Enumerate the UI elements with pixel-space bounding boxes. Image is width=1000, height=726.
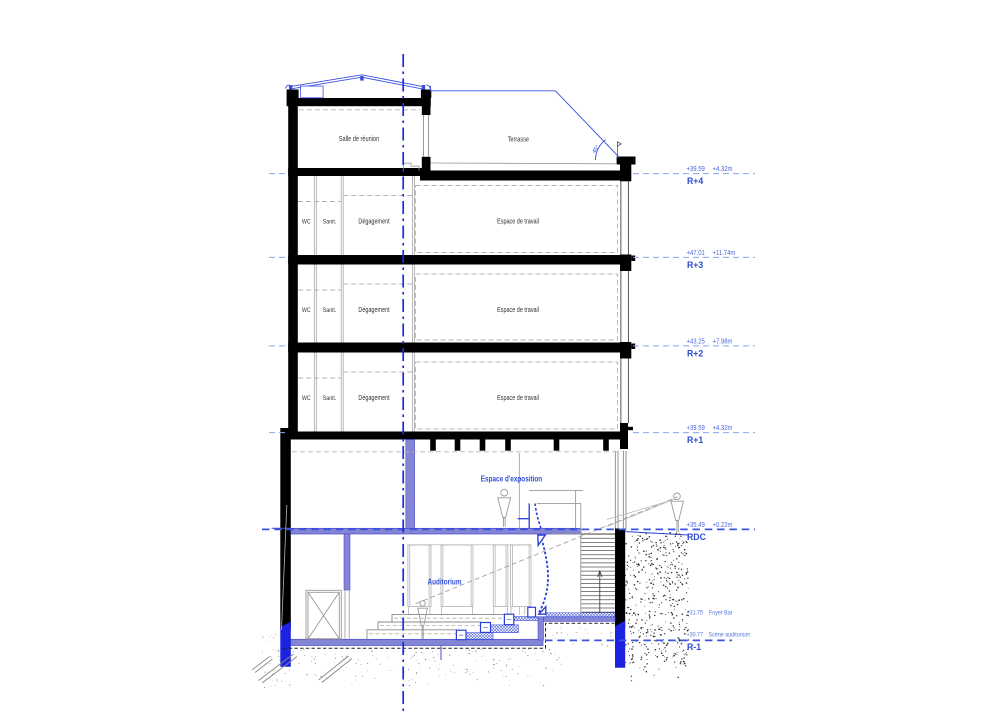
svg-text:RDC: RDC [687, 532, 706, 542]
svg-text:WC: WC [302, 219, 311, 226]
svg-text:Espace de travail: Espace de travail [497, 218, 539, 226]
svg-text:+43.25: +43.25 [687, 338, 706, 346]
svg-text:+4.32m: +4.32m [713, 166, 733, 174]
svg-text:+47.01: +47.01 [687, 250, 706, 258]
svg-text:+11.74m: +11.74m [713, 250, 736, 258]
svg-text:Dégagement: Dégagement [358, 218, 389, 226]
svg-text:+30.77: +30.77 [687, 632, 703, 638]
svg-text:Auditorium: Auditorium [427, 576, 461, 586]
svg-text:+31.75: +31.75 [687, 610, 703, 616]
svg-text:Espace de travail: Espace de travail [497, 394, 539, 402]
svg-text:Sanit.: Sanit. [323, 219, 337, 226]
svg-text:Foyer Bar: Foyer Bar [709, 610, 732, 616]
svg-text:+0.22m: +0.22m [713, 522, 733, 530]
svg-text:Terrasse: Terrasse [508, 136, 530, 144]
svg-text:Sanit.: Sanit. [323, 307, 337, 314]
svg-text:Sanit.: Sanit. [323, 395, 337, 402]
svg-text:WC: WC [302, 395, 311, 402]
svg-text:Dégagement: Dégagement [358, 394, 389, 402]
svg-text:R+1: R+1 [687, 435, 703, 445]
svg-text:Dégagement: Dégagement [358, 306, 389, 314]
svg-text:Espace de travail: Espace de travail [497, 306, 539, 314]
svg-text:+39.59: +39.59 [687, 425, 706, 433]
svg-text:+35.49: +35.49 [687, 522, 706, 530]
svg-text:WC: WC [302, 307, 311, 314]
svg-text:Scène auditorium: Scène auditorium [709, 632, 751, 638]
svg-text:Salle de réunion: Salle de réunion [339, 135, 380, 143]
svg-text:R-1: R-1 [687, 642, 701, 652]
svg-text:R+3: R+3 [687, 260, 703, 270]
svg-text:R+4: R+4 [687, 176, 704, 186]
svg-text:+39.59: +39.59 [687, 166, 706, 174]
svg-text:+7.98m: +7.98m [713, 338, 733, 346]
svg-text:+4.32m: +4.32m [713, 425, 733, 433]
svg-text:R+2: R+2 [687, 348, 703, 358]
svg-text:Espace d'exposition: Espace d'exposition [481, 474, 543, 484]
